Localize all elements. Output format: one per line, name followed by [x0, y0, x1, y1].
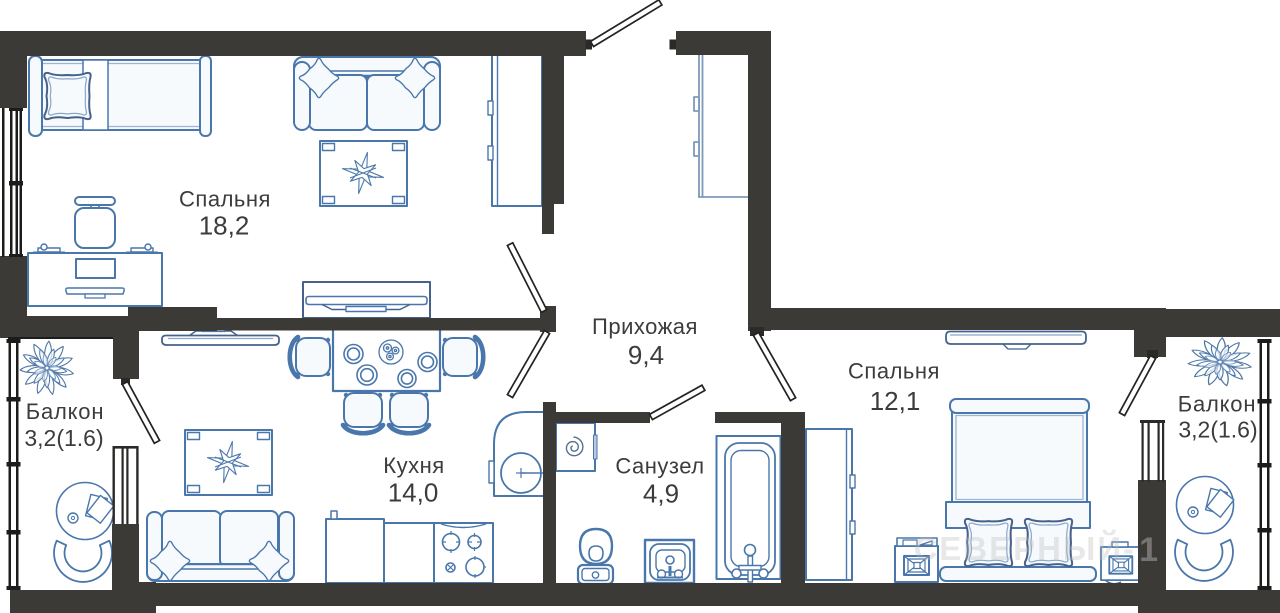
svg-text:14,0: 14,0: [388, 478, 439, 508]
svg-text:Балкон: Балкон: [1178, 392, 1257, 417]
svg-text:Кухня: Кухня: [383, 453, 444, 478]
svg-text:Спальня: Спальня: [179, 187, 271, 212]
svg-text:Балкон: Балкон: [26, 399, 105, 424]
svg-text:4,9: 4,9: [643, 479, 679, 509]
svg-text:1: 1: [1139, 531, 1158, 569]
svg-text:9,4: 9,4: [628, 340, 664, 370]
svg-text:3,2(1.6): 3,2(1.6): [24, 425, 103, 451]
svg-text:12,1: 12,1: [870, 386, 921, 416]
svg-text:18,2: 18,2: [199, 211, 250, 241]
svg-text:Санузел: Санузел: [615, 454, 704, 479]
svg-text:Прихожая: Прихожая: [592, 314, 698, 339]
svg-text:3,2(1.6): 3,2(1.6): [1178, 417, 1257, 443]
svg-text:Спальня: Спальня: [848, 359, 940, 384]
svg-text:СЕВЕРНЫЙ-: СЕВЕРНЫЙ-: [913, 529, 1136, 567]
